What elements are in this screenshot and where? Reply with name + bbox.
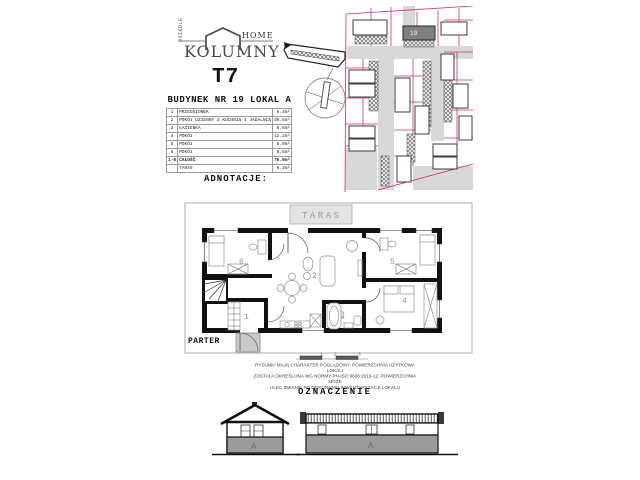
room-no: 6 [167, 149, 178, 157]
table-row: 4 POKÓJ 12.2m² [167, 133, 292, 141]
room-number-1: 1 [244, 313, 249, 322]
rooms-table: 1 PRZEDSIONEK 6.3m² 2 POKÓJ DZIENNY Z KU… [166, 108, 292, 173]
legend-title: OZNACZENIE [240, 387, 430, 397]
compass-icon [305, 68, 345, 118]
elevation-marker-a-right: A [368, 441, 374, 451]
elevation-marker-a-left: A [251, 442, 257, 452]
logo-name-label: KOLUMNY [184, 42, 280, 61]
table-row-terrace: TARAS 6.3m² [167, 165, 292, 173]
scale-bar: 1 2 3 [290, 352, 390, 362]
scale-label-2: 2 [334, 352, 337, 358]
table-row-total: 1-6 CAŁOŚĆ 76.9m² [167, 157, 292, 165]
scale-label-1: 1 [320, 352, 323, 358]
scale-label-3: 3 [358, 352, 361, 358]
elevation-side: A [296, 412, 458, 455]
room-no [167, 165, 178, 173]
floor-plan-sheet: OSIEDLE HOME KOLUMNY T7 BUDYNEK NR 19 LO… [0, 0, 640, 480]
room-number-3: 3 [340, 311, 345, 320]
room-number-5: 5 [390, 258, 395, 267]
disclaimer-line: ZOSTAŁA OKREŚLONA WG NORMY PN-ISO 9836:2… [248, 374, 423, 385]
room-name: TARAS [178, 165, 273, 173]
unit-code: T7 [212, 66, 239, 89]
table-row: 6 POKÓJ 8.5m² [167, 149, 292, 157]
table-row: 2 POKÓJ DZIENNY Z KUCHNIĄ I JADALNIĄ 30.… [167, 117, 292, 125]
room-name: CAŁOŚĆ [178, 157, 273, 165]
annotations-label: ADNOTACJE: [204, 174, 268, 184]
elevation-drawings: A A [208, 398, 468, 468]
table-row: 3 ŁAZIENKA 6.6m² [167, 125, 292, 133]
logo: OSIEDLE HOME KOLUMNY [176, 26, 276, 70]
room-name: POKÓJ [178, 141, 273, 149]
floor-label: PARTER [188, 337, 220, 346]
street-arrow-icon [284, 42, 345, 67]
room-name: POKÓJ [178, 133, 273, 141]
room-no: 3 [167, 125, 178, 133]
room-number-4: 4 [402, 297, 407, 306]
logo-estate-label: OSIEDLE [178, 32, 184, 42]
room-no: 2 [167, 117, 178, 125]
site-plan: 19 [283, 6, 475, 192]
floor-plan-drawing: TARAS [184, 202, 474, 354]
building-title: BUDYNEK NR 19 LOKAL A [167, 95, 292, 105]
table-row: 1 PRZEDSIONEK 6.3m² [167, 109, 292, 117]
logo-home-label: HOME [242, 31, 274, 40]
site-building-highlighted: 19 [403, 26, 435, 40]
disclaimer-line: RYSUNKI MAJĄ CHARAKTER POGLĄDOWY. POWIER… [248, 363, 423, 374]
room-no: 4 [167, 133, 178, 141]
room-name: POKÓJ DZIENNY Z KUCHNIĄ I JADALNIĄ [178, 117, 273, 125]
elevation-gable: A [212, 402, 300, 455]
terrace: TARAS [290, 205, 352, 224]
entry-porch [236, 333, 260, 352]
room-no: 1-6 [167, 157, 178, 165]
table-row: 5 POKÓJ 8.9m² [167, 141, 292, 149]
terrace-label: TARAS [302, 211, 342, 221]
room-no: 5 [167, 141, 178, 149]
room-no: 1 [167, 109, 178, 117]
site-building-number: 19 [410, 30, 418, 37]
room-name: PRZEDSIONEK [178, 109, 273, 117]
room-number-6: 6 [239, 258, 244, 267]
room-name: POKÓJ [178, 149, 273, 157]
room-name: ŁAZIENKA [178, 125, 273, 133]
room-number-2: 2 [312, 272, 317, 281]
